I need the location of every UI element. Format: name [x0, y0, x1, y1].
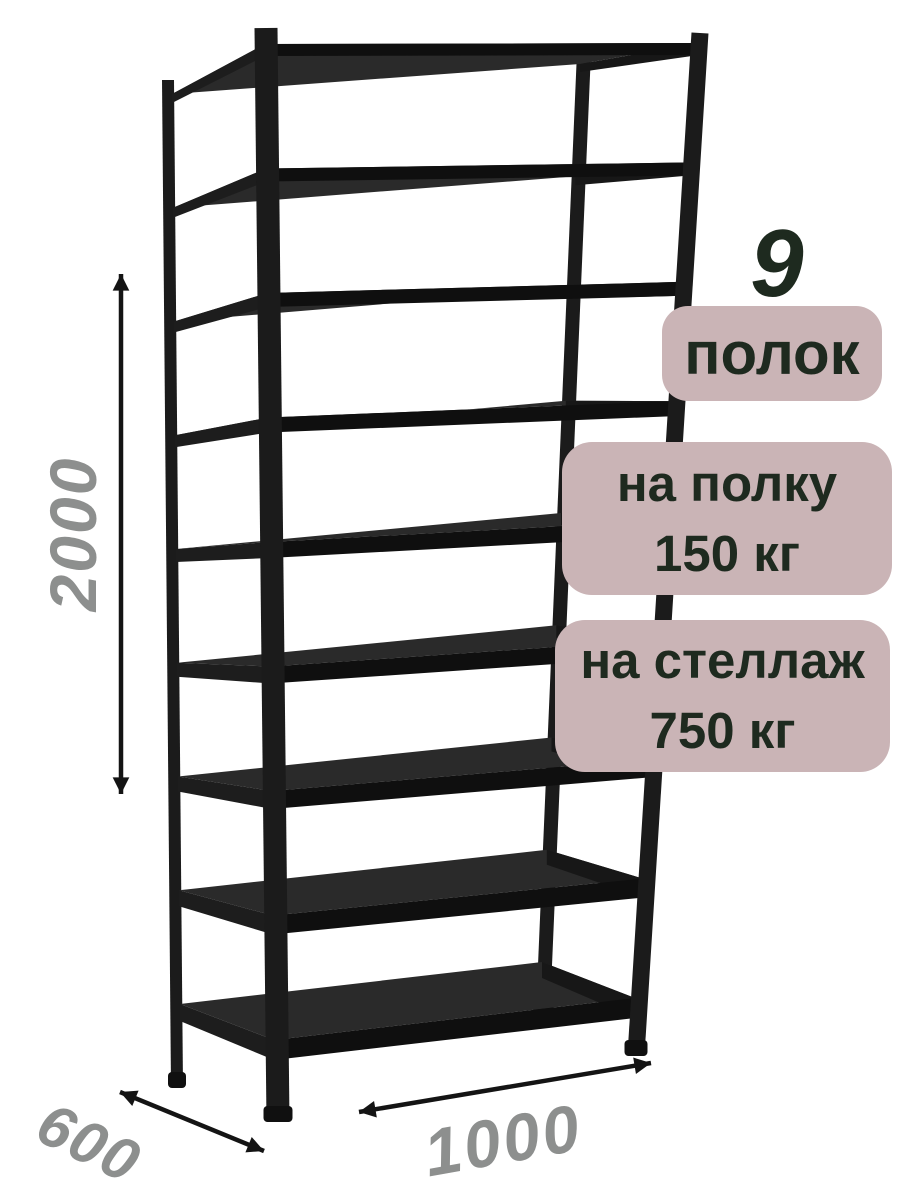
- rack-load-badge: на стеллаж 750 кг: [555, 620, 890, 772]
- post-rear-left: [168, 80, 177, 1087]
- post-front-right-foot: [625, 1040, 648, 1056]
- shelf-load-value: 150 кг: [654, 519, 800, 589]
- shelf-count-label: полок: [684, 319, 859, 388]
- shelf-3-front-edge: [267, 282, 683, 307]
- post-front-left: [266, 28, 278, 1121]
- shelf-4-left-edge: [175, 418, 268, 448]
- shelf-1-front-edge: [265, 43, 699, 56]
- shelf-load-text: на полку: [617, 449, 837, 519]
- post-rear-left-foot: [168, 1072, 186, 1088]
- shelf-load-badge: на полку 150 кг: [562, 442, 892, 595]
- rack-scene: [0, 0, 900, 1200]
- rack-load-value: 750 кг: [649, 696, 795, 766]
- shelf-count-number: 9: [750, 209, 803, 319]
- product-image: 2000 600 1000 9 полок на полку 150 кг на…: [0, 0, 900, 1200]
- shelf-4-front-edge: [268, 401, 675, 432]
- rack-load-text: на стеллаж: [580, 626, 864, 696]
- shelf-count-badge: полок: [662, 306, 882, 401]
- post-front-left-foot: [264, 1106, 293, 1122]
- height-dimension-label: 2000: [35, 457, 111, 612]
